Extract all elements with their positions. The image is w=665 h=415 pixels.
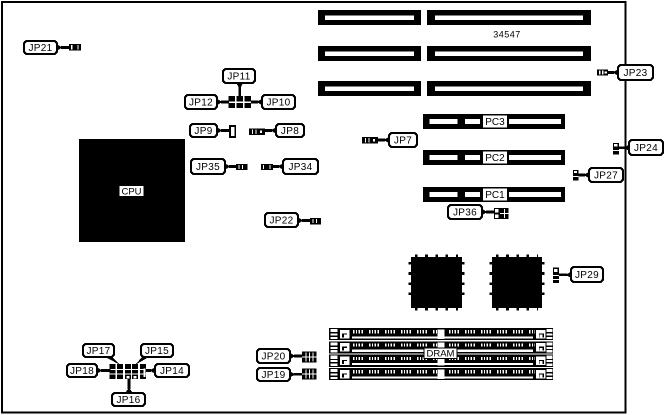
svg-text:JP27: JP27 <box>594 171 618 182</box>
svg-text:JP23: JP23 <box>624 68 648 79</box>
svg-text:34547: 34547 <box>493 30 521 40</box>
svg-text:JP11: JP11 <box>227 72 250 83</box>
svg-text:JP22: JP22 <box>270 216 294 227</box>
svg-text:JP17: JP17 <box>87 346 111 357</box>
svg-text:JP12: JP12 <box>189 98 213 109</box>
svg-text:JP19: JP19 <box>262 370 286 381</box>
svg-text:JP15: JP15 <box>145 346 169 357</box>
svg-text:CPU: CPU <box>121 187 141 198</box>
svg-text:JP10: JP10 <box>267 98 291 109</box>
svg-text:JP21: JP21 <box>29 43 53 54</box>
svg-text:JP9: JP9 <box>194 126 212 137</box>
svg-text:JP14: JP14 <box>160 366 184 377</box>
svg-text:JP18: JP18 <box>70 366 94 377</box>
svg-text:JP16: JP16 <box>117 395 141 406</box>
svg-text:JP7: JP7 <box>394 136 412 147</box>
svg-text:JP35: JP35 <box>196 162 220 173</box>
svg-text:JP20: JP20 <box>262 352 286 363</box>
svg-text:JP29: JP29 <box>575 270 599 281</box>
svg-text:PC2: PC2 <box>485 153 505 164</box>
svg-text:JP34: JP34 <box>289 162 313 173</box>
svg-text:DRAM: DRAM <box>427 349 455 360</box>
svg-text:PC3: PC3 <box>485 117 505 128</box>
svg-text:JP8: JP8 <box>281 126 299 137</box>
svg-text:JP24: JP24 <box>634 143 658 154</box>
svg-text:JP36: JP36 <box>453 208 477 219</box>
svg-text:PC1: PC1 <box>485 190 505 201</box>
